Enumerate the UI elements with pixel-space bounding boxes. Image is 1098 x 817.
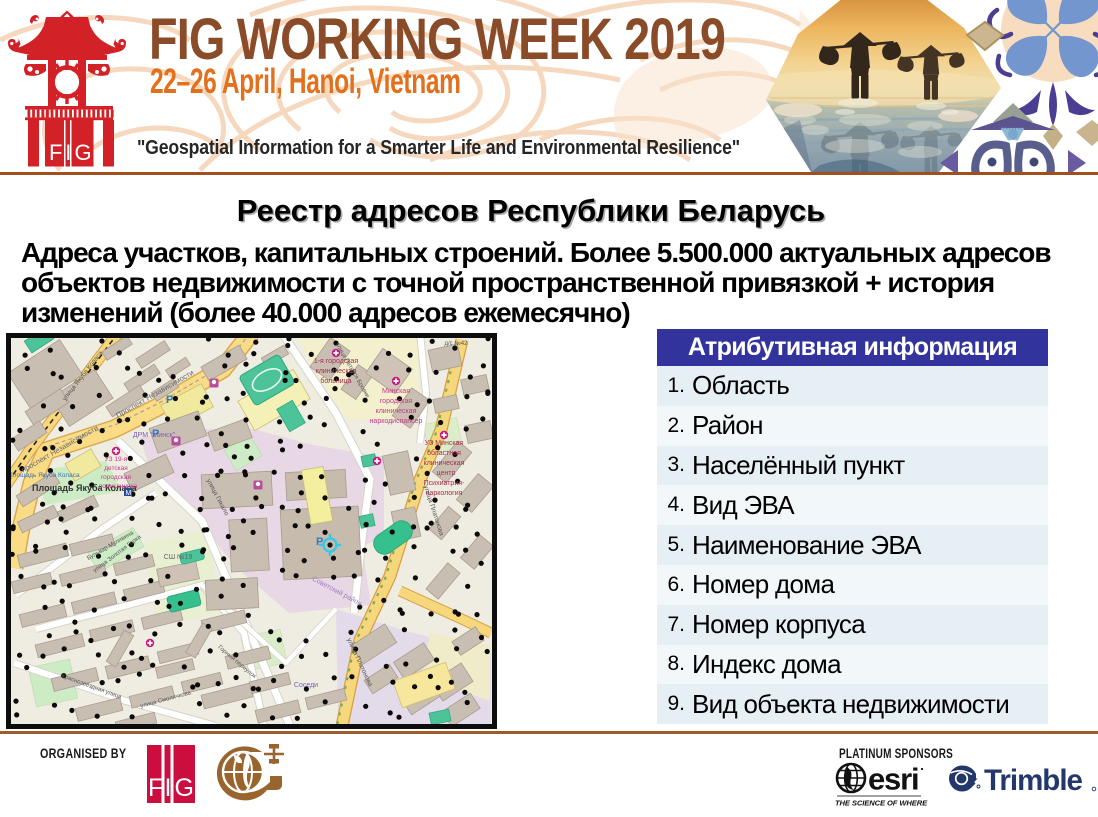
svg-text:СШ №19: СШ №19: [164, 554, 193, 561]
svg-text:F: F: [148, 774, 163, 802]
svg-text:I: I: [65, 140, 71, 165]
svg-text:УЗ 19-я: УЗ 19-я: [105, 456, 128, 463]
svg-text:Trimble: Trimble: [984, 764, 1083, 797]
svg-text:P: P: [166, 394, 173, 406]
svg-text:F: F: [49, 140, 62, 165]
svg-text:G: G: [75, 140, 92, 165]
svg-text:наркодиспансер: наркодиспансер: [370, 418, 423, 425]
svg-text:THE SCIENCE OF WHERE: THE SCIENCE OF WHERE: [835, 799, 928, 808]
svg-text:P: P: [152, 428, 159, 440]
svg-text:городская: городская: [380, 398, 413, 405]
svg-text:M: M: [126, 490, 132, 497]
svg-text:больница: больница: [320, 377, 351, 385]
svg-text:Соседи: Соседи: [294, 682, 318, 689]
svg-text:клиническая: клиническая: [424, 460, 465, 467]
svg-text:esri: esri: [868, 762, 918, 797]
svg-text:Минская: Минская: [382, 388, 410, 395]
svg-text:центр: центр: [437, 470, 456, 477]
svg-text:детская: детская: [104, 465, 128, 472]
svg-text:УЗ Минская: УЗ Минская: [425, 440, 464, 447]
svg-text:городская: городская: [101, 474, 132, 481]
svg-text:I: I: [165, 774, 172, 802]
svg-text:д/с №42: д/с №42: [445, 340, 469, 347]
svg-text:Площадь Якуба Коласа: Площадь Якуба Коласа: [8, 471, 80, 479]
svg-text:областная: областная: [427, 449, 461, 457]
svg-text:P: P: [316, 536, 323, 548]
svg-text:G: G: [175, 774, 194, 802]
svg-text:клиническая: клиническая: [376, 408, 417, 415]
